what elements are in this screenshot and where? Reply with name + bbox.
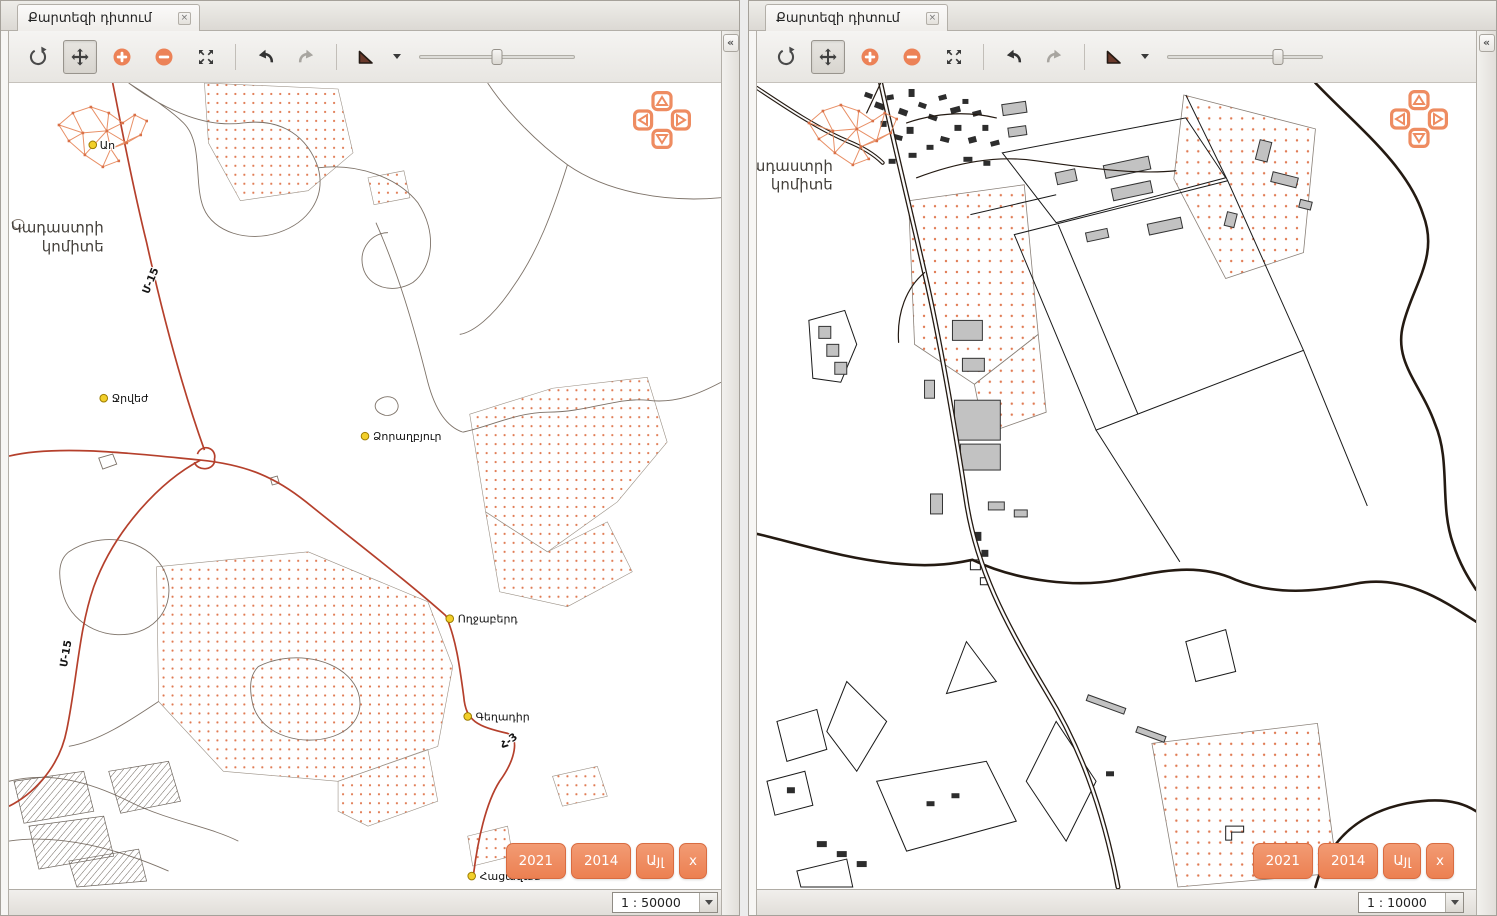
left-edge-strip [749,31,757,915]
pan-tool-button[interactable] [811,40,845,74]
year-2021-button[interactable]: 2021 [1253,843,1313,879]
cadastre-logo-mesh [58,106,148,168]
zoom-slider-handle[interactable] [492,49,503,65]
toolbar-separator [983,44,984,70]
other-layers-button[interactable]: Այլ [636,843,674,879]
redo-icon [1044,46,1066,68]
watermark-line2: կոմիտե [42,238,104,256]
measure-flag-icon [1104,47,1124,67]
undo-icon [1002,46,1024,68]
zoom-in-button[interactable] [853,40,887,74]
status-bar: 1 : 10000 [757,889,1476,915]
pan-north-button[interactable] [653,93,671,110]
year-2014-button[interactable]: 2014 [1318,843,1378,879]
tab-title: Քարտեզի դիտում [776,11,900,26]
map-viewport[interactable]: Կադաստրի կոմիտե [757,83,1476,889]
place-marker: Ողջաբերդ [446,613,518,626]
close-layers-button[interactable]: x [1426,843,1454,879]
zoom-extent-button[interactable] [189,40,223,74]
pan-north-button[interactable] [1410,92,1428,109]
map-toolbar [757,31,1476,83]
pan-west-button[interactable] [1392,110,1409,128]
zoom-out-button[interactable] [147,40,181,74]
zoom-in-icon [860,47,880,67]
undo-button[interactable] [996,40,1030,74]
zoom-slider-handle[interactable] [1272,49,1283,65]
road-label: Հ-3 [498,731,520,752]
svg-text:Գեղադիր: Գեղադիր [476,710,530,723]
zoom-in-icon [112,47,132,67]
pan-south-button[interactable] [653,130,671,147]
redo-icon [296,46,318,68]
measure-flag-dropdown-caret[interactable] [393,54,401,59]
scale-value: 1 : 50000 [613,895,699,910]
pan-tool-button[interactable] [63,40,97,74]
tab-bar: Քարտեզի դիտում × [749,1,1496,31]
measure-flag-button[interactable] [349,40,383,74]
map-viewer-panel-left: Քարտեզի դիտում × [0,0,740,916]
watermark-line1: Կադաստրի [757,157,833,175]
tab-close-icon[interactable]: × [926,12,939,25]
other-layers-button[interactable]: Այլ [1383,843,1421,879]
svg-text:Աո: Աո [100,139,115,152]
boundary-lines [757,83,1476,887]
stipple-areas [157,83,668,866]
collapse-panel-button[interactable]: « [1479,34,1495,52]
zoom-out-button[interactable] [895,40,929,74]
refresh-icon [775,46,797,68]
zoom-slider[interactable] [419,48,575,66]
zoom-slider[interactable] [1167,48,1323,66]
cadastre-watermark: Կադաստրի կոմիտե [11,219,104,256]
tab-bar: Քարտեզի դիտում × [1,1,739,31]
toolbar-separator [235,44,236,70]
tab-map-view[interactable]: Քարտեզի դիտում × [17,4,200,31]
zoom-slider-track[interactable] [1167,55,1323,59]
refresh-icon [27,46,49,68]
collapse-panel-button[interactable]: « [723,34,739,52]
scale-dropdown[interactable]: 1 : 10000 [1358,892,1464,913]
zoom-extent-button[interactable] [937,40,971,74]
collapsed-sidebar-strip: « [721,31,739,915]
compass-svg [633,91,691,149]
watermark-line1: Կադաստրի [11,219,104,237]
refresh-button[interactable] [769,40,803,74]
refresh-button[interactable] [21,40,55,74]
redo-button[interactable] [290,40,324,74]
map-canvas-svg: Մ-15 Մ-15 Հ-3 Կադաստրի կոմիտե [9,83,721,889]
left-edge-strip [1,31,9,915]
svg-text:Ձորաղբյուր: Ձորաղբյուր [373,430,442,443]
tab-map-view[interactable]: Քարտեզի դիտում × [765,4,948,31]
map-viewport[interactable]: Մ-15 Մ-15 Հ-3 Կադաստրի կոմիտե [9,83,721,889]
pan-south-button[interactable] [1410,129,1428,146]
measure-flag-button[interactable] [1097,40,1131,74]
undo-icon [254,46,276,68]
map-pan-compass [1390,90,1448,148]
tab-close-icon[interactable]: × [178,12,191,25]
place-marker: Ձորաղբյուր [361,430,441,443]
map-viewer-panel-right: Քարտեզի դիտում × [748,0,1497,916]
layer-year-buttons: 2021 2014 Այլ x [506,843,707,879]
chevron-down-icon[interactable] [699,893,717,912]
undo-button[interactable] [248,40,282,74]
close-layers-button[interactable]: x [679,843,707,879]
year-2021-button[interactable]: 2021 [506,843,566,879]
collapsed-sidebar-strip: « [1476,31,1496,915]
pan-west-button[interactable] [635,111,652,129]
pan-icon [818,47,838,67]
cadastre-watermark: Կադաստրի կոմիտե [757,157,833,194]
road-label: Մ-15 [58,639,75,668]
place-marker: Ջրվեժ [100,392,149,405]
zoom-extent-icon [944,47,964,67]
zoom-in-button[interactable] [105,40,139,74]
svg-text:Ողջաբերդ: Ողջաբերդ [458,613,519,626]
map-canvas-svg: Կադաստրի կոմիտե [757,83,1476,889]
toolbar-separator [1084,44,1085,70]
pan-icon [70,47,90,67]
map-pan-compass [633,91,691,149]
hatched-parcels [14,761,181,887]
measure-flag-dropdown-caret[interactable] [1141,54,1149,59]
map-toolbar [9,31,721,83]
tab-title: Քարտեզի դիտում [28,11,152,26]
zoom-extent-icon [196,47,216,67]
toolbar-separator [336,44,337,70]
year-2014-button[interactable]: 2014 [571,843,631,879]
chevron-down-icon[interactable] [1445,893,1463,912]
place-marker: Աո [89,139,115,152]
measure-flag-icon [356,47,376,67]
scale-dropdown[interactable]: 1 : 50000 [612,892,718,913]
redo-button[interactable] [1038,40,1072,74]
status-bar: 1 : 50000 [9,889,721,915]
pan-east-button[interactable] [672,111,689,129]
compass-svg [1390,90,1448,148]
watermark-line2: կոմիտե [771,176,833,194]
zoom-out-icon [902,47,922,67]
scale-value: 1 : 10000 [1359,895,1445,910]
pan-east-button[interactable] [1429,110,1446,128]
svg-text:Ջրվեժ: Ջրվեժ [112,392,149,405]
layer-year-buttons: 2021 2014 Այլ x [1253,843,1454,879]
zoom-out-icon [154,47,174,67]
